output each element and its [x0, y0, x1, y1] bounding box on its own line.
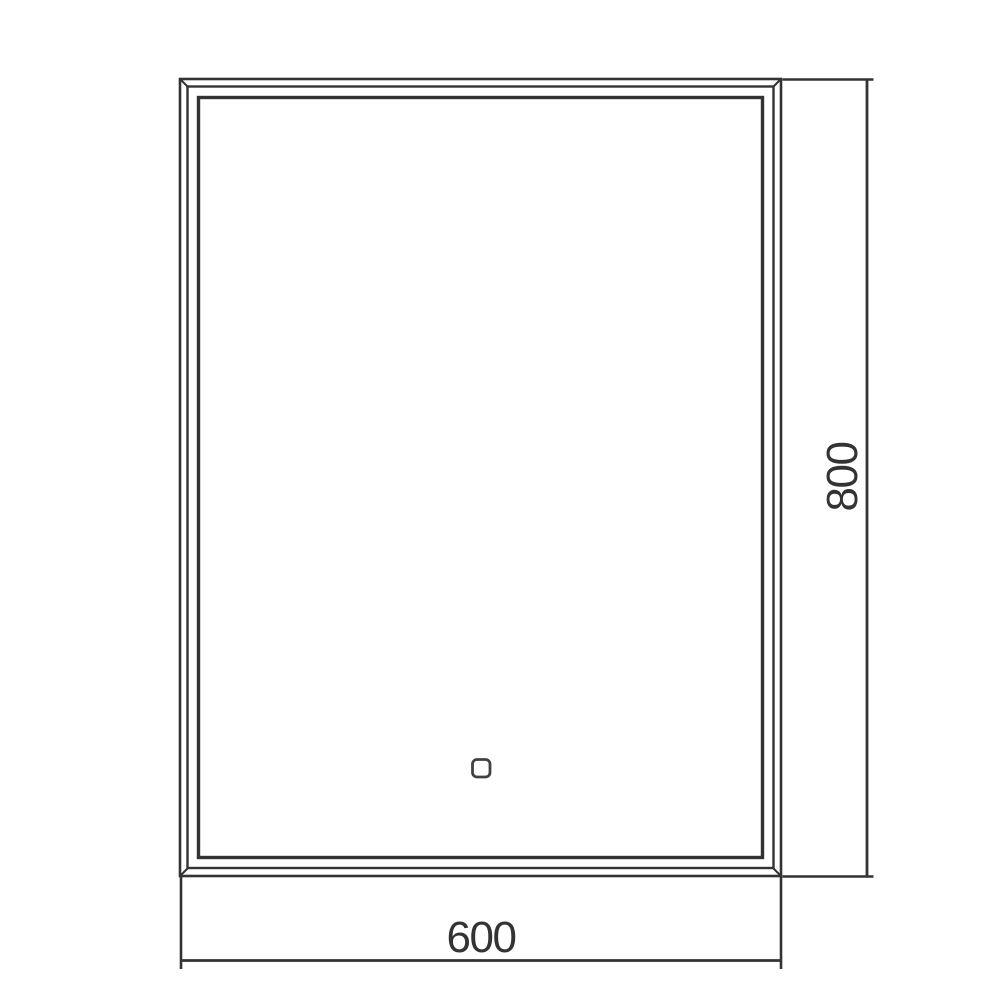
height-dimension-label: 800	[818, 443, 867, 512]
touch-sensor-icon	[473, 760, 491, 778]
mirror-dimension-drawing: 600 800	[0, 0, 1000, 1000]
mirror-inner-edge	[199, 98, 763, 858]
drawing-line-work	[180, 79, 874, 969]
mirror-outer-frame	[180, 79, 781, 876]
width-dimension-label: 600	[447, 913, 516, 962]
technical-drawing-page: 600 800	[0, 0, 1000, 1000]
mirror-middle-frame-line	[188, 87, 774, 869]
